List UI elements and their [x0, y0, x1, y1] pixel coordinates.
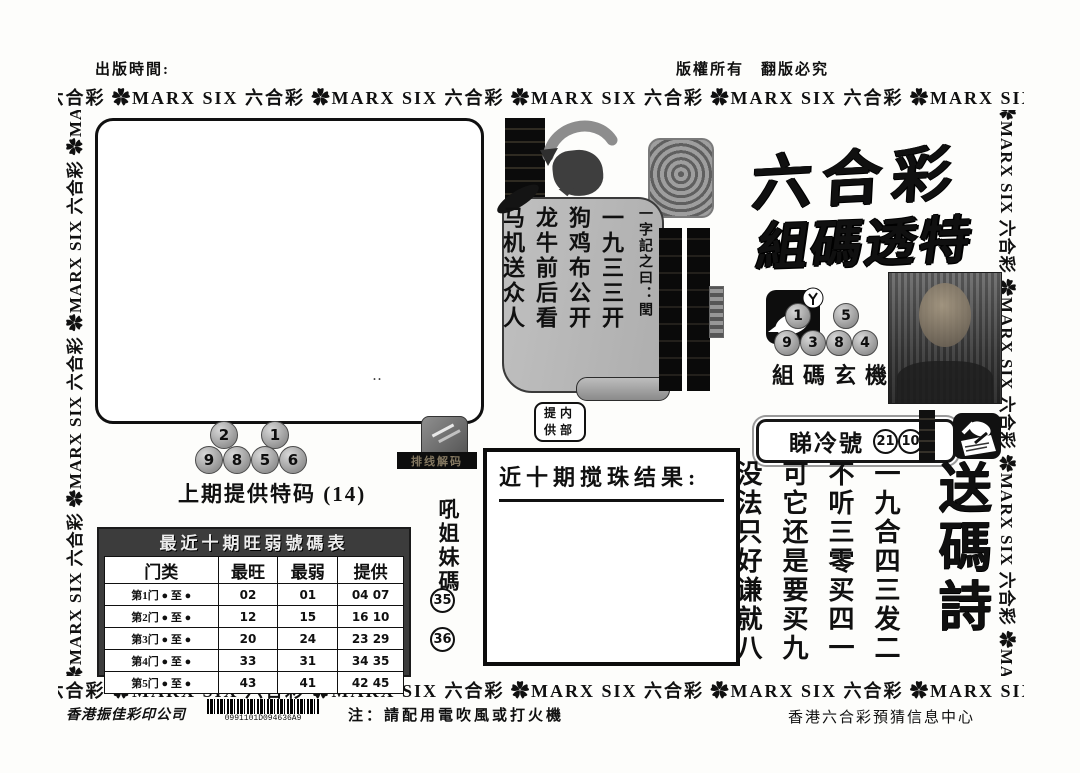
vertical-text-column: 可它还是要买九 [775, 460, 812, 674]
number-ball: 5 [251, 446, 279, 474]
black-tag-icon [919, 410, 935, 462]
usage-note: 注：請配用電吹風或打火機 [348, 704, 564, 725]
value-cell: 12 [218, 606, 278, 628]
last-special-balls-bottom: 9856 [195, 446, 307, 474]
scroll-intro-column: 一字記之曰：閏 [634, 206, 654, 384]
number-ball: 9 [195, 446, 223, 474]
code-poem-title: 送碼詩 [922, 460, 998, 674]
copyright-label: 版權所有 翻版必究 [676, 58, 829, 79]
recent-results-box: 近十期搅珠结果: [483, 448, 740, 666]
top-border-marquee: 六合彩 ✿MARX SIX 六合彩 ✿MARX SIX 六合彩 ✿MARX SI… [58, 84, 1024, 110]
barcode [207, 699, 319, 714]
decode-tag-label: 排线解码 [397, 452, 477, 469]
masthead-subtitle: 組碼透特 [753, 198, 979, 280]
value-cell: 41 [278, 672, 338, 694]
table-row: 第5门 ● 至 ●434142 45 [105, 672, 404, 694]
door-cell: 第4门 ● 至 ● [105, 650, 219, 672]
printer-name: 香港振佳彩印公司 [66, 704, 186, 724]
value-cell: 24 [278, 628, 338, 650]
mystery-balls-top: 15 [785, 303, 859, 329]
left-border-marquee: 六合彩 ✿MARX SIX 六合彩 ✿MARX SIX 六合彩 ✿MARX SI… [58, 110, 88, 676]
table-header-cell: 最旺 [218, 557, 278, 584]
publish-time-label: 出版時間: [95, 58, 170, 79]
value-cell: 15 [278, 606, 338, 628]
last-special-balls-top: 21 [210, 421, 289, 449]
table-row: 第4门 ● 至 ●333134 35 [105, 650, 404, 672]
info-center-label: 香港六合彩預猜信息中心 [788, 706, 975, 727]
number-ball: 4 [852, 330, 878, 356]
black-bar-icon [687, 228, 710, 391]
value-cell: 42 45 [338, 672, 404, 694]
table-header-cell: 最弱 [278, 557, 338, 584]
number-ball: 6 [279, 446, 307, 474]
value-cell: 34 35 [338, 650, 404, 672]
number-ball: 5 [833, 303, 859, 329]
mystery-code-label: 組碼玄機 [772, 358, 896, 390]
zodiac-scroll: 一字記之曰：閏 一九三三开狗鸡布公开龙牛前后看马机送众人 [502, 197, 664, 393]
table-header-cell: 提供 [338, 557, 404, 584]
door-cell: 第1门 ● 至 ● [105, 584, 219, 606]
flyer-page: 出版時間: 版權所有 翻版必究 六合彩 ✿MARX SIX 六合彩 ✿MARX … [0, 0, 1080, 773]
zodiac-scroll-text: 一字記之曰：閏 一九三三开狗鸡布公开龙牛前后看马机送众人 [495, 206, 654, 384]
door-cell: 第2门 ● 至 ● [105, 606, 219, 628]
value-cell: 31 [278, 650, 338, 672]
writing-hand-icon [953, 413, 1001, 459]
prediction-box [95, 118, 484, 424]
number-ball: 1 [785, 303, 811, 329]
code-poem: 送碼詩 一九合四三发二不听三零买四一可它还是要买九没法只好谦就八十二生肖排第五 [750, 460, 998, 674]
cold-numbers-label: 睇冷號 [789, 424, 864, 458]
vertical-text-column: 马机送众人 [496, 206, 528, 384]
circled-number: 36 [430, 627, 455, 652]
vertical-text-column: 不听三零买四一 [821, 460, 858, 674]
number-ball: 8 [826, 330, 852, 356]
door-cell: 第5门 ● 至 ● [105, 672, 219, 694]
number-ball: 2 [210, 421, 238, 449]
number-ball: 3 [800, 330, 826, 356]
recent-results-heading: 近十期搅珠结果: [499, 460, 724, 502]
sister-codes-label: 吼姐妹碼 [433, 498, 463, 594]
value-cell: 20 [218, 628, 278, 650]
value-cell: 33 [218, 650, 278, 672]
portrait-photo [888, 272, 1002, 404]
gray-tag-icon [709, 286, 724, 338]
mystery-balls-bottom: 9384 [774, 330, 878, 356]
table-row: 第3门 ● 至 ●202423 29 [105, 628, 404, 650]
last-special-value: (14) [323, 482, 366, 506]
internal-supply-badge: 提内 供部 [534, 402, 586, 442]
table-row: 第1门 ● 至 ●020104 07 [105, 584, 404, 606]
black-bar-icon [659, 228, 682, 391]
vertical-text-column: 狗鸡布公开 [562, 206, 594, 384]
vertical-text-column: 一九三三开 [595, 206, 627, 384]
barcode-digits: 0991101D094636A9 [207, 714, 319, 723]
value-cell: 01 [278, 584, 338, 606]
table-title: 最近十期旺弱號碼表 [104, 532, 404, 556]
vertical-text-column: 龙牛前后看 [529, 206, 561, 384]
door-cell: 第3门 ● 至 ● [105, 628, 219, 650]
circled-number: 21 [873, 429, 898, 454]
strong-weak-table: 最近十期旺弱號碼表 门类最旺最弱提供 第1门 ● 至 ●020104 07第2门… [97, 527, 411, 677]
number-ball: 9 [774, 330, 800, 356]
circled-number: 35 [430, 588, 455, 613]
vertical-text-column: 一九合四三发二 [867, 460, 904, 674]
sister-codes-numbers: 3536 [430, 588, 455, 652]
value-cell: 02 [218, 584, 278, 606]
last-special-label: 上期提供特码 (14) [178, 478, 366, 508]
value-cell: 23 29 [338, 628, 404, 650]
value-cell: 16 10 [338, 606, 404, 628]
number-ball: 8 [223, 446, 251, 474]
value-cell: 04 07 [338, 584, 404, 606]
box-marks: ‥ [372, 366, 384, 385]
number-ball: 1 [261, 421, 289, 449]
table-grid: 门类最旺最弱提供 第1门 ● 至 ●020104 07第2门 ● 至 ●1215… [104, 556, 404, 694]
cold-numbers: 2110 [873, 429, 923, 454]
table-header-row: 门类最旺最弱提供 [105, 557, 404, 584]
value-cell: 43 [218, 672, 278, 694]
table-row: 第2门 ● 至 ●121516 10 [105, 606, 404, 628]
table-header-cell: 门类 [105, 557, 219, 584]
